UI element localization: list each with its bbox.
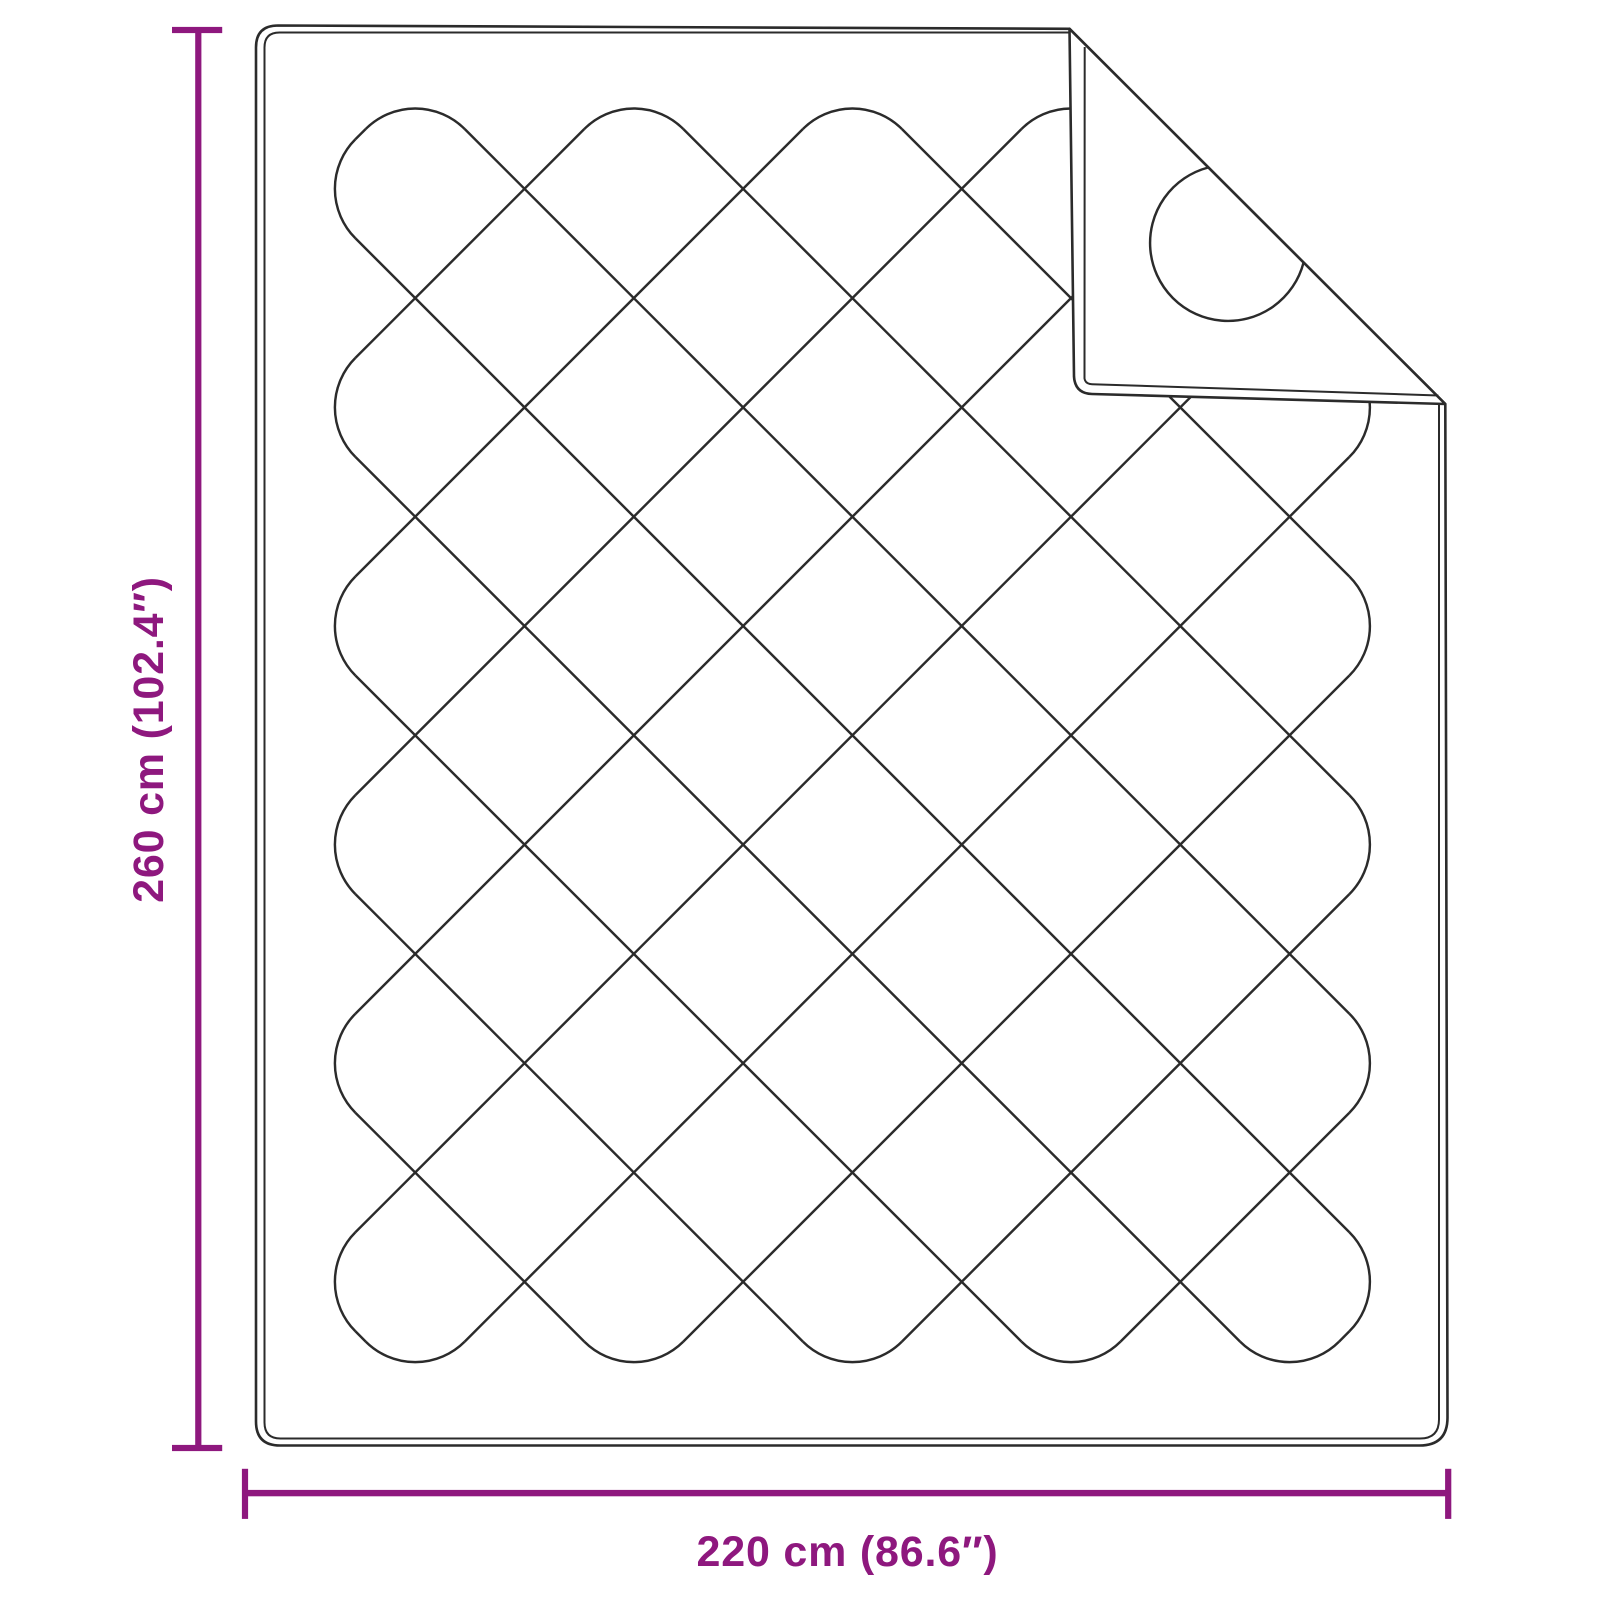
svg-text:260 cm (102.4″): 260 cm (102.4″) [125,576,173,903]
svg-text:220 cm (86.6″): 220 cm (86.6″) [697,1528,999,1576]
